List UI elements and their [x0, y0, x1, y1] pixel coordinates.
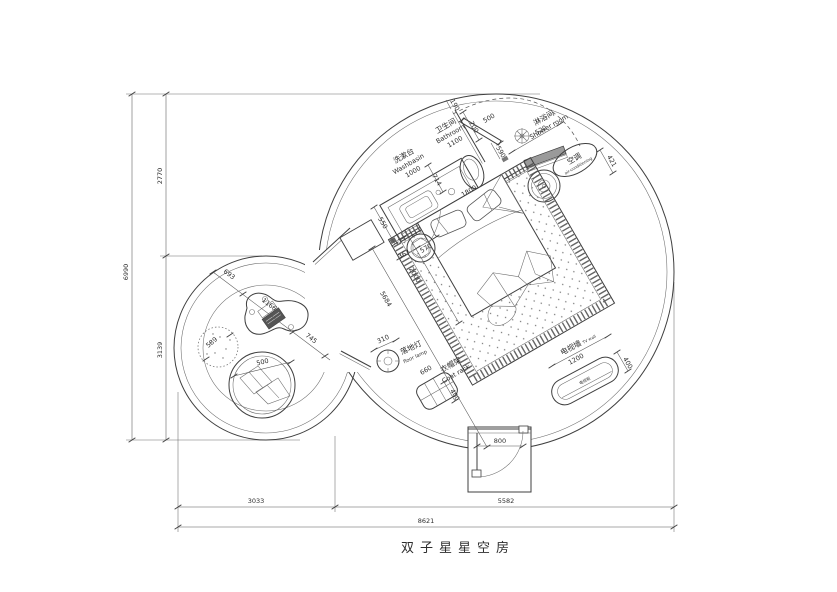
pouf	[198, 327, 238, 367]
door-jamb-block	[519, 426, 528, 433]
door-leaf-block	[472, 470, 481, 477]
washbasin-label: 洗漱台 Washbasin 1000	[386, 142, 430, 184]
faucet-icon	[435, 189, 441, 195]
dim-width-total: 8621	[418, 517, 435, 525]
air-conditioner: 空调 air-conditioning	[548, 137, 603, 184]
dim-height-upper: 2770	[156, 168, 164, 185]
dim-height-total: 6990	[122, 264, 130, 281]
floor-lamp	[377, 350, 399, 372]
dim-wall-gap: 190	[448, 98, 461, 113]
dim-cushion: 500	[256, 357, 270, 368]
floor-drain-icon	[514, 128, 530, 144]
dim-ac: 421	[605, 154, 618, 169]
floor-plan-page: 6990 2770 3139 3033 5582 8621 800 1800	[0, 0, 837, 592]
dim-pouf: 589	[204, 335, 219, 349]
corridor-opening	[305, 250, 367, 372]
dim-shower-door: 500	[482, 112, 497, 125]
shower-bench	[524, 146, 568, 172]
dim-door-width: 800	[494, 437, 506, 445]
floor-plan-svg: 6990 2770 3139 3033 5582 8621 800 1800	[0, 0, 837, 592]
dim-tv-h: 400	[621, 356, 634, 371]
dim-width-right: 5582	[498, 497, 515, 505]
dim-height-lower: 3139	[156, 342, 164, 359]
dim-room-diagonal: 5684	[378, 290, 393, 308]
tv-cabinet: 电视柜	[547, 353, 623, 410]
dim-toilet-offset: 714	[430, 173, 443, 188]
floor-lamp-label: 落地灯 floor lamp	[397, 337, 428, 365]
dim-693: 693	[222, 267, 237, 281]
dim-coat-rack-h: 400	[448, 388, 461, 403]
kidney-table	[245, 293, 308, 334]
tv-cabinet-label: 电视柜	[578, 375, 591, 386]
dim-tv-w: 1200	[567, 352, 585, 367]
dim-width-left: 3033	[248, 497, 265, 505]
plan-title: 双子星星空房	[401, 540, 515, 556]
dim-coat-rack-w: 660	[419, 364, 434, 377]
